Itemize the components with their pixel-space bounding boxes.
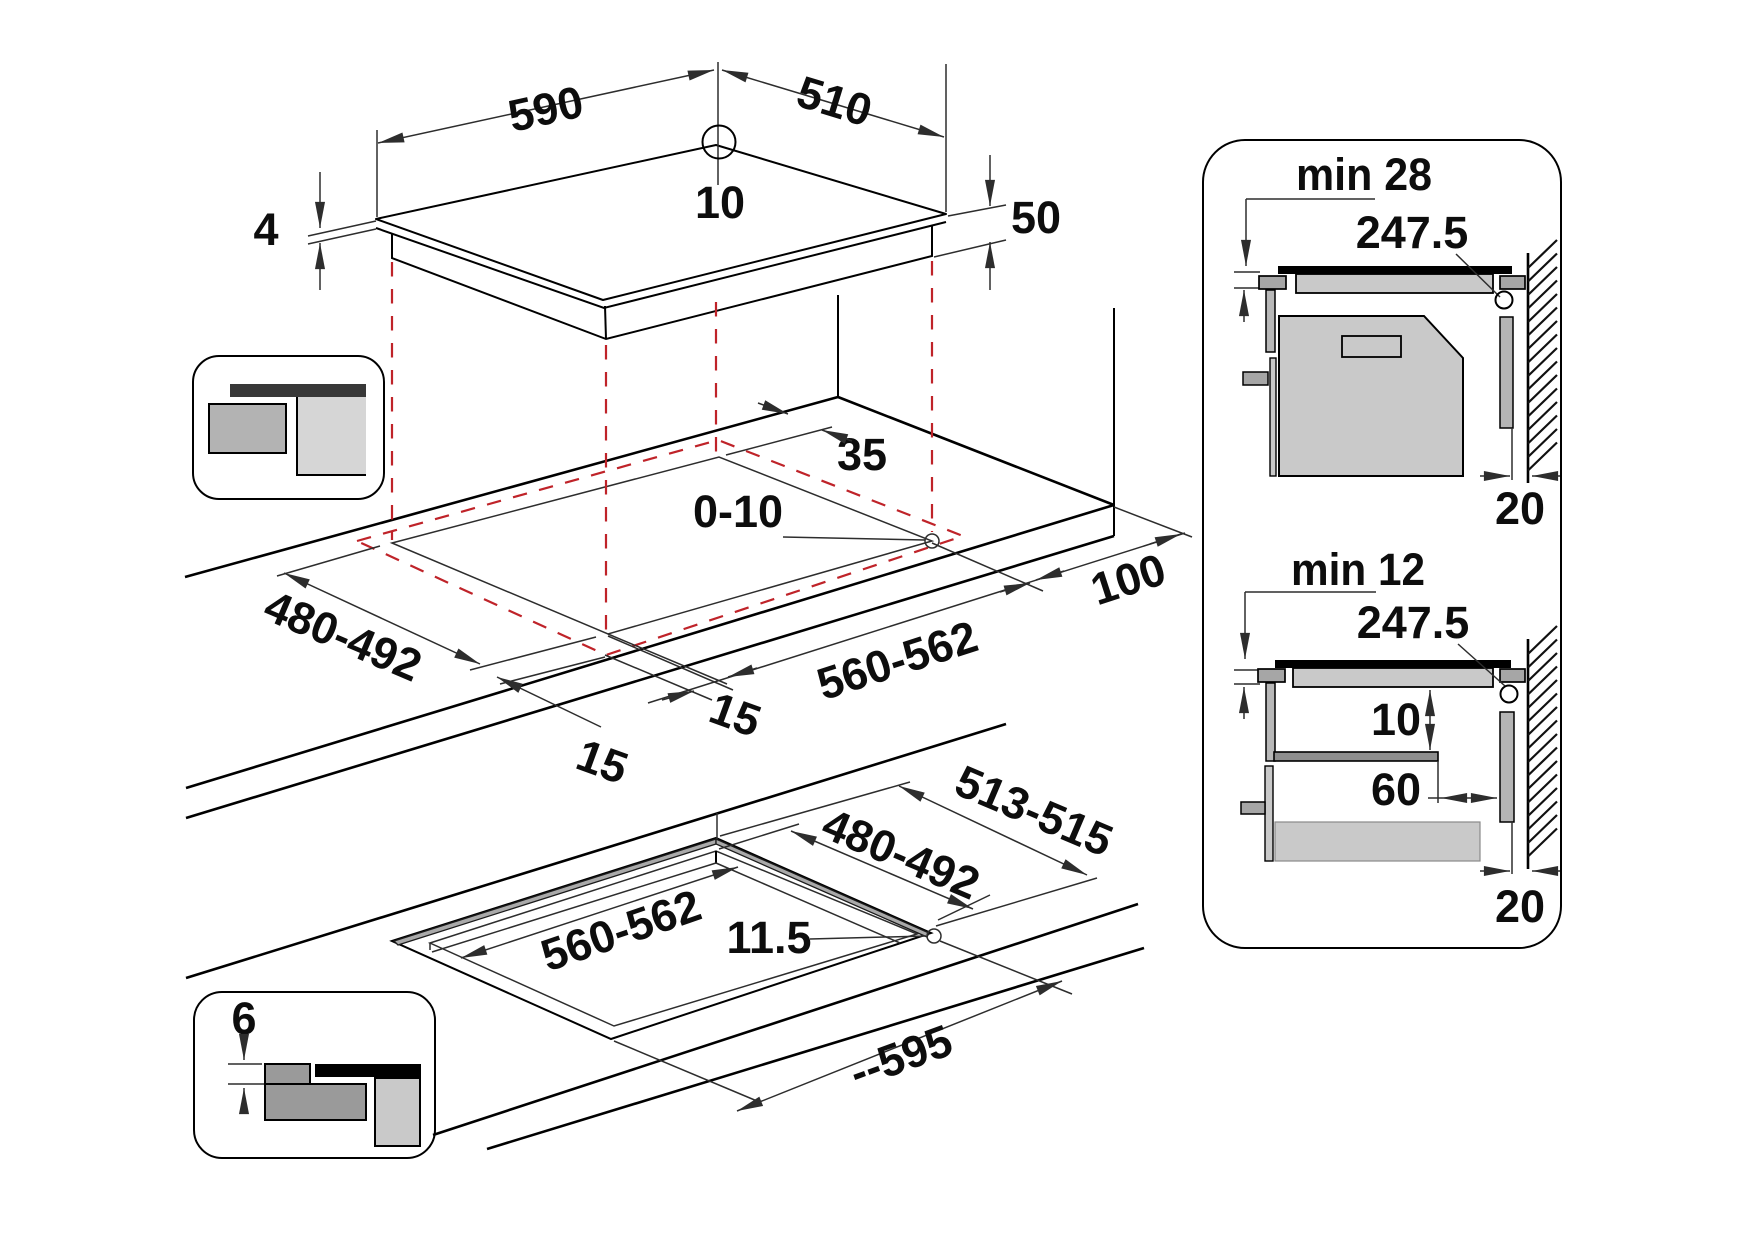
svg-text:480-492: 480-492 xyxy=(257,580,429,691)
svg-text:560-562: 560-562 xyxy=(811,610,984,710)
svg-text:560-562: 560-562 xyxy=(535,879,708,981)
svg-text:50: 50 xyxy=(1011,192,1061,243)
svg-text:10: 10 xyxy=(695,177,745,228)
svg-text:35: 35 xyxy=(837,429,887,480)
svg-text:20: 20 xyxy=(1495,483,1545,534)
svg-text:100: 100 xyxy=(1085,543,1172,615)
svg-text:6: 6 xyxy=(231,993,256,1044)
svg-text:min 28: min 28 xyxy=(1296,149,1432,200)
svg-text:247.5: 247.5 xyxy=(1357,597,1470,648)
svg-text:60: 60 xyxy=(1371,764,1421,815)
svg-text:247.5: 247.5 xyxy=(1356,207,1469,258)
svg-text:15: 15 xyxy=(570,729,634,794)
svg-text:11.5: 11.5 xyxy=(726,912,811,963)
svg-text:510: 510 xyxy=(791,66,878,137)
svg-text:min 12: min 12 xyxy=(1291,544,1425,595)
svg-text:--595: --595 xyxy=(843,1015,959,1099)
svg-text:20: 20 xyxy=(1495,881,1545,932)
svg-text:0-10: 0-10 xyxy=(693,486,783,537)
svg-text:590: 590 xyxy=(503,76,587,142)
svg-text:4: 4 xyxy=(253,204,278,255)
svg-text:15: 15 xyxy=(703,682,767,747)
svg-text:10: 10 xyxy=(1371,694,1421,745)
